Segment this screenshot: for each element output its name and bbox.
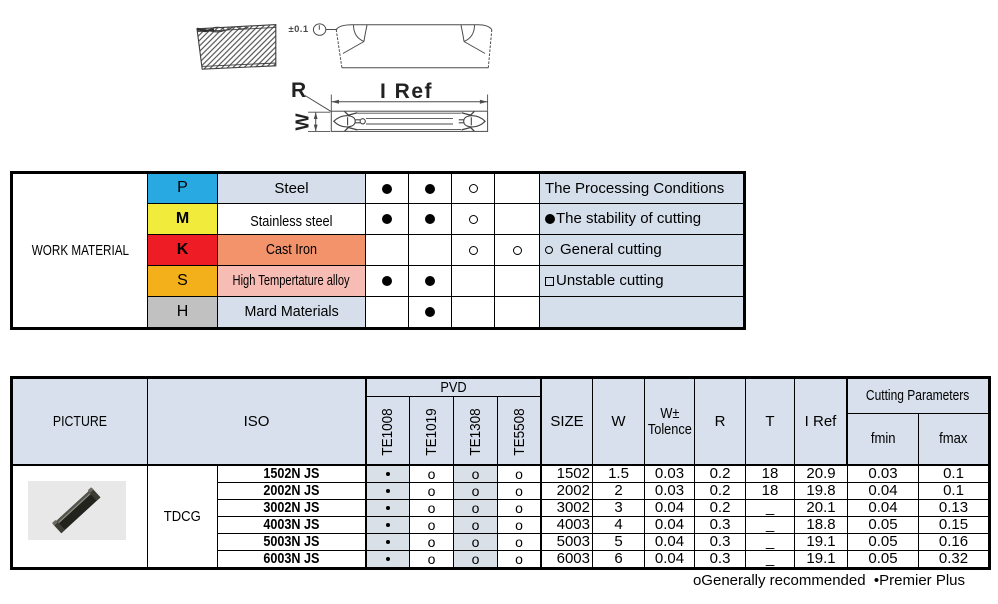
svg-text:R: R bbox=[291, 79, 306, 102]
svg-text:I Ref: I Ref bbox=[380, 80, 433, 103]
svg-text:±0.1: ±0.1 bbox=[289, 24, 309, 35]
svg-text:W: W bbox=[293, 114, 313, 131]
